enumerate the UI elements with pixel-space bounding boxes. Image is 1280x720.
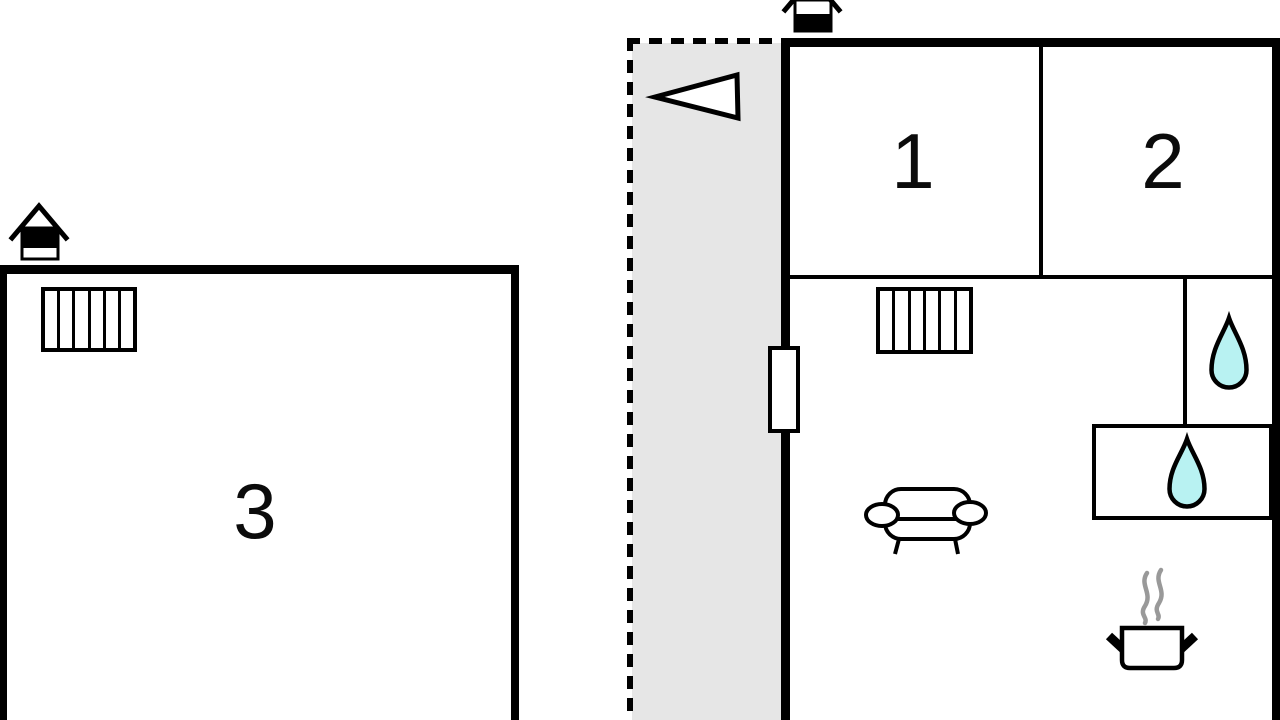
entrance-arrow-icon	[648, 70, 744, 124]
room-3-label: 3	[233, 472, 276, 550]
stairs-icon-left	[41, 287, 137, 352]
stairs-icon-right	[876, 287, 973, 354]
water-drop-icon	[1208, 315, 1250, 393]
entrance-door	[768, 346, 800, 433]
right-building-top-wall	[781, 38, 1280, 47]
room-2-label: 2	[1141, 122, 1184, 200]
water-drop-icon	[1166, 436, 1208, 512]
left-building-top-wall	[0, 265, 519, 274]
interior-wall-bathroom	[1183, 279, 1187, 425]
cooking-pot-icon	[1100, 565, 1204, 675]
sofa-icon	[858, 481, 992, 559]
corridor	[632, 43, 781, 720]
interior-wall-horizontal	[790, 275, 1272, 279]
interior-wall-room1-room2	[1039, 47, 1043, 279]
corridor-dashed-left-line	[627, 38, 633, 720]
right-building-right-wall	[1272, 38, 1280, 720]
room-1-label: 1	[891, 122, 934, 200]
left-building-left-wall	[0, 265, 7, 720]
left-building-right-wall	[511, 265, 519, 720]
corridor-dashed-top-line	[627, 38, 781, 44]
floor-plan: 3 1 2	[0, 0, 1280, 720]
chimney-icon-left	[8, 202, 70, 260]
chimney-icon-top	[781, 0, 843, 32]
